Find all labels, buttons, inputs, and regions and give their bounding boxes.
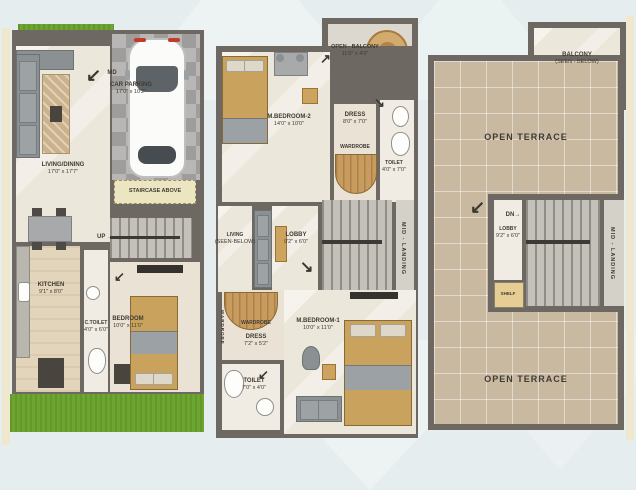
coffee-table	[50, 106, 62, 122]
desk-chair	[296, 54, 304, 62]
dress-1-door-arrow-icon: ↙	[258, 368, 269, 381]
nightstand	[114, 364, 130, 384]
bedroom-tv-unit	[350, 292, 398, 299]
desk-chair	[276, 54, 284, 62]
toilet-sink	[86, 286, 100, 300]
bedroom-tv-unit	[137, 265, 183, 273]
balcony-label: BALCONY(SEEN - BELOW)	[534, 52, 620, 66]
sofa	[296, 396, 342, 422]
kitchen-label: KITCHEN9'1" x 8'0"	[28, 282, 74, 296]
shelf-label: SHELF	[494, 290, 522, 297]
up-label: UP →	[90, 234, 120, 241]
main-door-label: MD	[102, 70, 122, 77]
kitchen-appliance	[38, 358, 64, 388]
mid-landing-label: MID - LANDING	[400, 214, 406, 284]
toilet-sink	[392, 106, 409, 127]
terrace-lobby-label: LOBBY9'2" x 6'0"	[490, 226, 526, 240]
floorplan-canvas: { "icons": { "arrow_right": "→", "arrow_…	[0, 0, 636, 445]
balcony-door-arrow-icon: ↗	[320, 52, 331, 65]
car-parking-label: CAR PARKING17'0" x 10'2"	[108, 82, 154, 96]
living-below-label: LIVING(SEEN-BELOW)	[214, 232, 256, 246]
bedroom-door-arrow-icon: ↙	[114, 270, 125, 283]
m-bedroom-2-label: M.BEDROOM-214'0" x 10'0"	[256, 114, 322, 128]
dress-2-label: DRESS8'0" x 7'0"	[332, 112, 378, 126]
dress-1-label: DRESS7'2" x 5'2"	[234, 334, 278, 348]
wardrobe-1-label: WARDROBE	[234, 320, 278, 327]
dn-arrow-icon: →	[514, 212, 520, 218]
toilet-1-label: TOILET7'0" x 4'0"	[232, 378, 276, 392]
back-lawn	[10, 394, 204, 432]
wardrobe-arc	[335, 154, 377, 194]
toilet-2-label: TOILET4'0" x 7'0"	[372, 160, 416, 174]
bed	[344, 320, 412, 426]
kitchen-counter	[16, 246, 30, 358]
lobby-label: LOBBY9'2" x 6'0"	[276, 232, 316, 246]
stair-rail	[322, 240, 382, 244]
mid-landing-label: MID - LANDING	[609, 216, 615, 292]
ground-floor-plan: ↙ MD CAR PARKING17'0" x 10'2" LIVING/DIN…	[10, 20, 208, 432]
terrace-floor-plan: BALCONY(SEEN - BELOW) OPEN TERRACE DN→ L…	[426, 10, 634, 434]
dn-label: DN→	[498, 212, 528, 219]
open-balcony-label: OPEN - BALCONY11'0" x 4'0"	[326, 44, 384, 58]
bedroom-1-door-arrow-icon: ↘	[300, 260, 313, 276]
up-arrow-icon: →	[107, 234, 113, 240]
living-void-floor	[218, 206, 252, 292]
toilet-wc	[88, 348, 106, 374]
first-floor-plan: ↗ OPEN - BALCONY11'0" x 4'0" M.BEDROOM-2…	[214, 4, 424, 444]
staircase	[322, 200, 392, 296]
toilet-2-door-arrow-icon: ↘	[374, 96, 385, 109]
open-terrace-lower-label: OPEN TERRACE	[468, 376, 584, 383]
stair-rail	[526, 240, 590, 244]
toilet-sink	[256, 398, 274, 416]
sofa	[16, 54, 40, 158]
left-accent-stripe	[2, 28, 10, 445]
bench-sofa	[254, 210, 272, 288]
stair-rail	[110, 236, 180, 239]
dining-chair	[32, 208, 42, 216]
car	[128, 38, 186, 178]
main-door-arrow-icon: ↙	[86, 66, 101, 84]
open-terrace-upper-label: OPEN TERRACE	[468, 134, 584, 141]
bed	[130, 296, 178, 390]
toilet-wc	[391, 132, 410, 156]
bed	[222, 56, 268, 144]
terrace-door-arrow-icon: ↙	[470, 198, 485, 216]
ottoman	[302, 88, 318, 104]
wardrobe-2-label: WARDROBE	[332, 144, 378, 151]
staircase-above-label: STAIRCASE ABOVE	[114, 188, 196, 195]
m-bedroom-1-label: M.BEDROOM-110'0" x 11'0"	[288, 318, 348, 332]
dining-chair	[56, 208, 66, 216]
dining-chair	[56, 242, 66, 250]
dining-chair	[32, 242, 42, 250]
bedroom-label: BEDROOM10'0" x 11'0"	[102, 316, 154, 330]
dining-table	[28, 216, 72, 242]
staircase-down	[526, 200, 600, 306]
armchair	[302, 346, 320, 370]
wardrobe-side-label: WARDROBE	[220, 298, 225, 356]
living-dining-label: LIVING/DINING17'0" x 17'7"	[28, 162, 98, 176]
side-table	[322, 364, 336, 380]
